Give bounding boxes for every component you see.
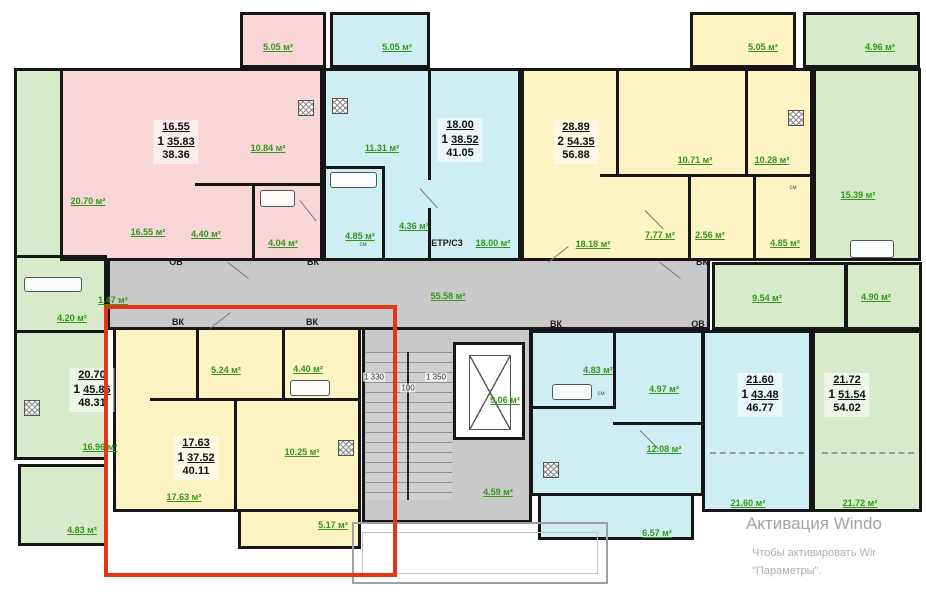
area-label: 4.20 м² [57,313,87,323]
summary-living-area: 51.54 [838,389,866,401]
fixture-label: см [789,185,796,191]
summary-total-area: 38.36 [157,149,194,162]
service-label: ОВ [691,319,705,329]
area-label: 16.55 м² [131,227,166,237]
wall [616,68,619,176]
area-label: 4.96 м² [865,42,895,52]
apartment-summary: 21.72151.5454.02 [824,373,869,417]
stair-divider [407,352,409,500]
watermark-subtitle: Чтобы активировать Wir [752,547,876,559]
wall [382,166,385,260]
summary-room-count: 1 [73,382,80,396]
area-label: 6.57 м² [642,528,672,538]
stove-icon [24,400,40,416]
service-label: ОВ [169,257,183,267]
apartment-green-right-top [813,68,921,261]
wall [325,166,385,169]
area-label: 18.00 м² [476,238,511,248]
summary-total-area: 56.88 [557,149,594,162]
dimension-label: 100 [400,384,415,393]
summary-total-area: 46.77 [741,402,778,415]
fixture-label: см [597,391,604,397]
wall [688,177,691,260]
wall [753,177,756,260]
area-label: 4.83 м² [67,525,97,535]
entrance-porch-step [362,532,598,574]
wall [613,422,704,425]
area-label: 10.28 м² [755,155,790,165]
bathtub-icon [260,190,295,207]
balcony-pink-top [240,12,326,68]
area-label: 11.31 м² [365,143,399,153]
apartment-cyan-bottom-right [702,330,812,512]
french-balcony-line [822,452,914,454]
apartment-summary: 28.89254.3556.88 [553,120,598,164]
area-label: 18.18 м² [576,239,611,249]
highlight-rectangle [104,305,397,577]
area-label: 12.08 м² [647,444,682,454]
fixture-label: см [359,242,366,248]
wall [745,68,748,176]
wall [600,174,813,177]
area-label: 5.05 м² [748,42,778,52]
area-label: 1.47 м² [98,295,128,305]
wall [428,68,431,180]
wall [428,208,431,260]
summary-room-count: 1 [741,387,748,401]
apartment-summary: 18.00138.5241.05 [437,118,482,162]
balcony-cyan-top [330,12,430,68]
stove-icon [298,100,314,116]
summary-total-area: 54.02 [828,402,865,415]
bathtub-icon [552,384,592,400]
apartment-green-bottom-right [812,330,922,512]
summary-total-area: 41.05 [441,147,478,160]
bathtub-icon [24,277,82,292]
floor-plan: Активация Windo Чтобы активировать Wir "… [0,0,926,610]
wall [14,330,107,333]
area-label: 10.71 м² [678,155,713,165]
area-label: 21.72 м² [843,498,878,508]
service-label: ВК [550,319,562,329]
watermark-title: Активация Windo [746,514,882,534]
apartment-summary: 21.60143.4846.77 [737,373,782,417]
area-label: 4.85 м² [345,231,375,241]
area-label: 20.70 м² [71,196,106,206]
elevator-cross-icon [469,355,511,430]
area-label: 4.04 м² [268,238,298,248]
service-label: ETP/C3 [431,238,463,248]
dimension-label: 1 350 [425,373,447,382]
wall [252,186,255,260]
summary-room-area: 28.89 [557,121,594,134]
area-label: 21.60 м² [731,498,766,508]
summary-room-count: 1 [157,134,164,148]
area-label: 5.05 м² [382,42,412,52]
area-label: 9.54 м² [752,293,782,303]
service-label: ВК [307,257,319,267]
bathtub-icon [330,172,377,188]
summary-room-count: 2 [557,134,564,148]
summary-room-count: 1 [441,132,448,146]
area-label: 2.56 м² [695,230,725,240]
summary-living-area: 43.48 [751,389,779,401]
area-label: 4.40 м² [191,229,221,239]
summary-living-area: 35.83 [167,136,195,148]
summary-room-count: 1 [828,387,835,401]
area-label: 10.84 м² [251,143,286,153]
summary-living-area: 54.35 [567,136,595,148]
apartment-summary: 16.55135.8338.36 [153,120,198,164]
summary-living-area: 38.52 [451,134,479,146]
area-label: 7.77 м² [645,230,675,240]
wall [533,406,616,409]
wall [195,183,323,186]
area-label: 4.83 м² [583,365,613,375]
wall [613,332,616,408]
stove-icon [332,98,348,114]
summary-room-area: 21.72 [828,374,865,387]
french-balcony-line [710,452,804,454]
area-label: 15.39 м² [841,190,876,200]
area-label: 55.58 м² [431,291,466,301]
wall [14,255,107,258]
stove-icon [788,110,804,126]
summary-room-area: 21.60 [741,374,778,387]
summary-room-area: 18.00 [441,119,478,132]
area-label: 5.05 м² [263,42,293,52]
area-label: 4.59 м² [483,487,513,497]
area-label: 4.36 м² [399,221,429,231]
area-label: 9.06 м² [490,395,520,405]
balcony-yellow-top [690,12,796,68]
area-label: 4.97 м² [649,384,679,394]
stove-icon [543,462,559,478]
bathtub-icon [850,240,894,258]
area-label: 4.85 м² [770,238,800,248]
watermark-settings: "Параметры". [752,565,822,577]
balcony-green-top [803,12,920,68]
service-label: ВК [696,257,708,267]
area-label: 4.90 м² [861,292,891,302]
summary-room-area: 16.55 [157,121,194,134]
